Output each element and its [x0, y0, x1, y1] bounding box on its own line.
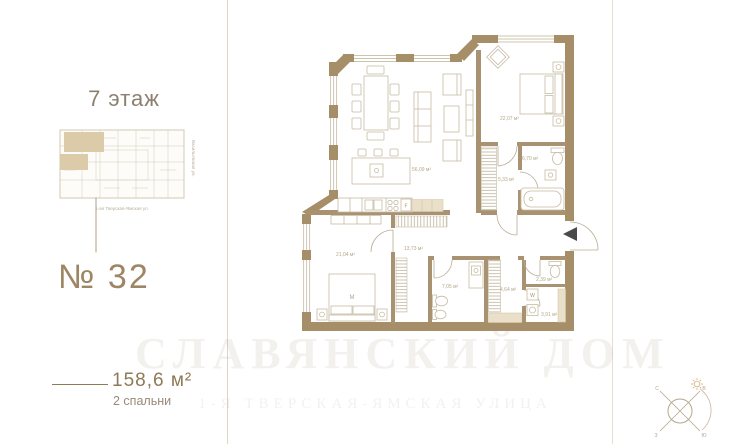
compass-direction-s: Ю	[701, 433, 706, 439]
wc-fixtures	[549, 262, 561, 278]
minimap-street-bottom: 1-ая Тверская-Ямская ул.	[95, 206, 149, 211]
floor-minimap: Васильевская ул. 1-ая Тверская-Ямская ул…	[60, 130, 196, 252]
compass-direction-w: З	[654, 433, 657, 439]
bedroom-2-door	[498, 146, 517, 166]
hallway-wardrobe	[396, 258, 407, 312]
sun-path-arc	[700, 389, 711, 430]
tv-console	[466, 90, 473, 136]
kitchen-counter: F	[338, 198, 443, 212]
vestibule-door	[497, 215, 517, 235]
compass-icon: С В З Ю	[654, 378, 711, 439]
bathroom-1-door	[434, 260, 452, 278]
room-area-label: 21,04 м²	[336, 252, 355, 258]
toilet	[436, 296, 448, 306]
washer-label: W	[530, 293, 535, 299]
bedroom-2-furniture	[487, 46, 564, 126]
kitchen-tall-cabinet	[412, 200, 443, 212]
dining-set	[352, 66, 399, 140]
furniture: F M	[317, 46, 566, 323]
duct-block	[489, 313, 522, 323]
compass-direction-n: С	[655, 386, 659, 392]
kitchen-island	[352, 149, 410, 184]
wc-door	[524, 260, 540, 276]
bathroom-1-fixtures	[433, 262, 484, 320]
toilet	[553, 153, 563, 165]
entrance-arrow-icon	[563, 227, 577, 241]
minimap-street-right: Васильевская ул.	[191, 140, 196, 177]
sun-icon	[691, 378, 703, 390]
room-area-label: 5,33 м²	[498, 177, 515, 183]
room-area-label: 7,05 м²	[442, 284, 459, 290]
bidet	[435, 310, 446, 319]
wardrobe-1-shelving	[489, 260, 501, 312]
room-area-label: 6,70 м²	[522, 156, 539, 162]
master-bed-label: M	[350, 295, 355, 301]
dresser	[331, 216, 381, 225]
room-area-label: 2,39 м²	[536, 277, 553, 283]
armchair-diagonal	[487, 46, 510, 69]
minimap-highlighted-unit	[64, 132, 104, 152]
room-area-label: 4,64 м²	[500, 287, 517, 293]
coffee-table	[444, 106, 459, 132]
minimap-highlighted-unit-2	[60, 154, 88, 170]
bathroom-2-door	[520, 172, 538, 190]
room-area-label: 3,91 м²	[541, 312, 558, 318]
master-bedroom-door	[371, 230, 393, 252]
floorplan-page: СЛАВЯНСКИЙ ДОМ 1-Я ТВЕРСКАЯ-ЯМСКАЯ УЛИЦА…	[0, 0, 740, 444]
floorplan-svg: Васильевская ул. 1-ая Тверская-Ямская ул…	[0, 0, 740, 444]
room-area-label: 13,73 м²	[404, 246, 423, 252]
armchairs	[443, 74, 461, 161]
master-bedroom-furniture: M	[317, 216, 387, 322]
toilet	[550, 266, 560, 278]
sofa	[414, 92, 431, 142]
kitchen-sink	[365, 200, 373, 210]
room-area-label: 56,09 м²	[412, 167, 431, 173]
fridge-label: F	[404, 204, 407, 210]
room-area-label: 22,07 м²	[500, 116, 519, 122]
wardrobe-2-shelving	[482, 147, 497, 210]
hallway-coat-closet	[396, 216, 447, 227]
